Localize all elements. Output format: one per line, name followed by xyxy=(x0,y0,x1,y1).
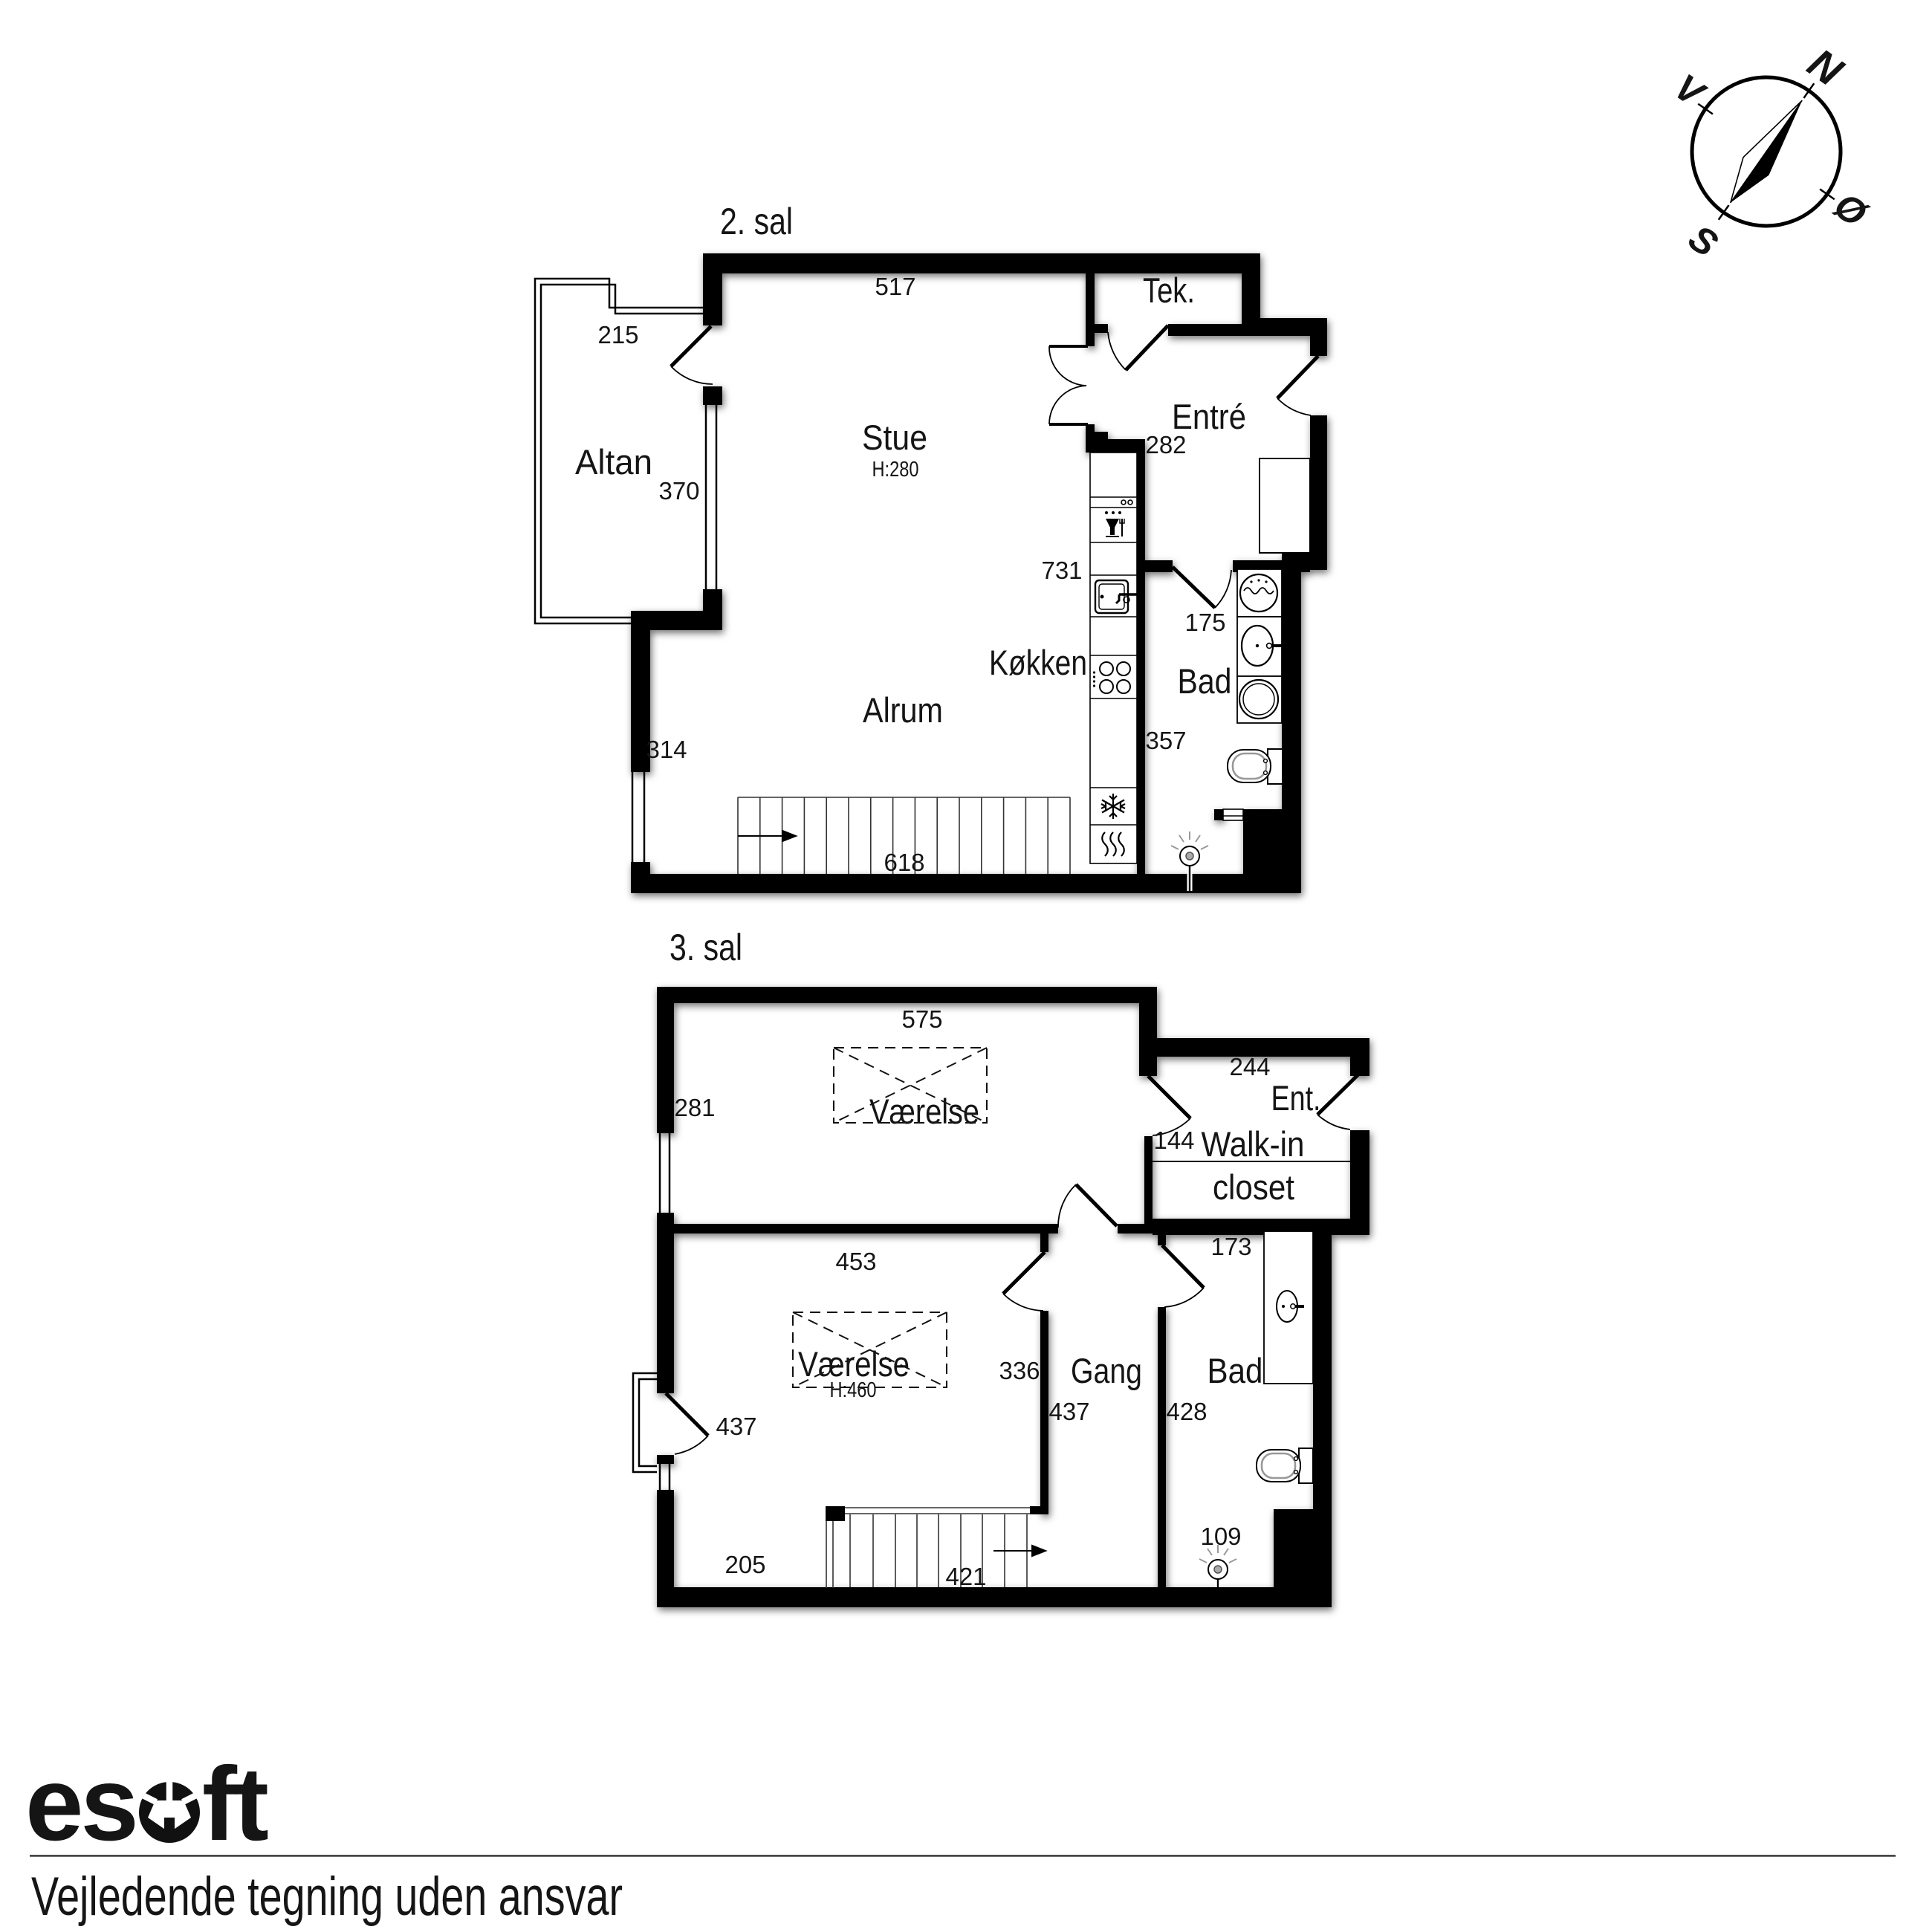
svg-text:109: 109 xyxy=(1200,1523,1241,1550)
svg-text:Værelse: Værelse xyxy=(869,1092,979,1131)
svg-text:173: 173 xyxy=(1210,1233,1251,1260)
svg-text:314: 314 xyxy=(646,736,687,763)
svg-text:2. sal: 2. sal xyxy=(720,201,793,242)
svg-text:618: 618 xyxy=(884,849,924,876)
svg-text:205: 205 xyxy=(724,1551,765,1578)
svg-text:Walk-in: Walk-in xyxy=(1202,1124,1305,1164)
svg-text:575: 575 xyxy=(901,1005,942,1033)
svg-text:421: 421 xyxy=(945,1563,986,1590)
svg-text:Bad: Bad xyxy=(1178,661,1232,701)
svg-text:Ent.: Ent. xyxy=(1271,1078,1321,1118)
svg-text:closet: closet xyxy=(1213,1167,1294,1207)
svg-text:370: 370 xyxy=(658,477,699,505)
svg-text:Gang: Gang xyxy=(1071,1351,1142,1390)
svg-text:731: 731 xyxy=(1041,557,1082,584)
svg-text:Altan: Altan xyxy=(575,442,652,482)
svg-text:282: 282 xyxy=(1145,431,1186,458)
svg-text:215: 215 xyxy=(597,321,638,349)
svg-text:281: 281 xyxy=(674,1094,715,1121)
svg-text:144: 144 xyxy=(1153,1127,1194,1154)
svg-text:517: 517 xyxy=(875,273,915,300)
svg-text:es: es xyxy=(25,1745,136,1862)
svg-text:H:460: H:460 xyxy=(830,1378,877,1402)
svg-text:Alrum: Alrum xyxy=(863,690,943,730)
svg-text:Tek.: Tek. xyxy=(1143,270,1195,310)
svg-text:H:280: H:280 xyxy=(872,458,919,482)
svg-text:437: 437 xyxy=(1048,1398,1089,1425)
svg-text:Køkken: Køkken xyxy=(989,643,1087,682)
svg-text:175: 175 xyxy=(1184,609,1225,636)
svg-text:Stue: Stue xyxy=(862,418,927,457)
svg-text:Vejledende tegning uden ansvar: Vejledende tegning uden ansvar xyxy=(31,1867,623,1927)
svg-text:244: 244 xyxy=(1229,1053,1270,1080)
svg-text:3. sal: 3. sal xyxy=(670,927,742,968)
svg-text:ft: ft xyxy=(202,1745,268,1862)
svg-text:Bad: Bad xyxy=(1207,1351,1263,1390)
svg-text:437: 437 xyxy=(716,1413,756,1440)
svg-text:428: 428 xyxy=(1166,1398,1207,1425)
svg-text:453: 453 xyxy=(835,1248,876,1275)
svg-text:357: 357 xyxy=(1145,727,1186,754)
svg-text:336: 336 xyxy=(999,1357,1040,1384)
